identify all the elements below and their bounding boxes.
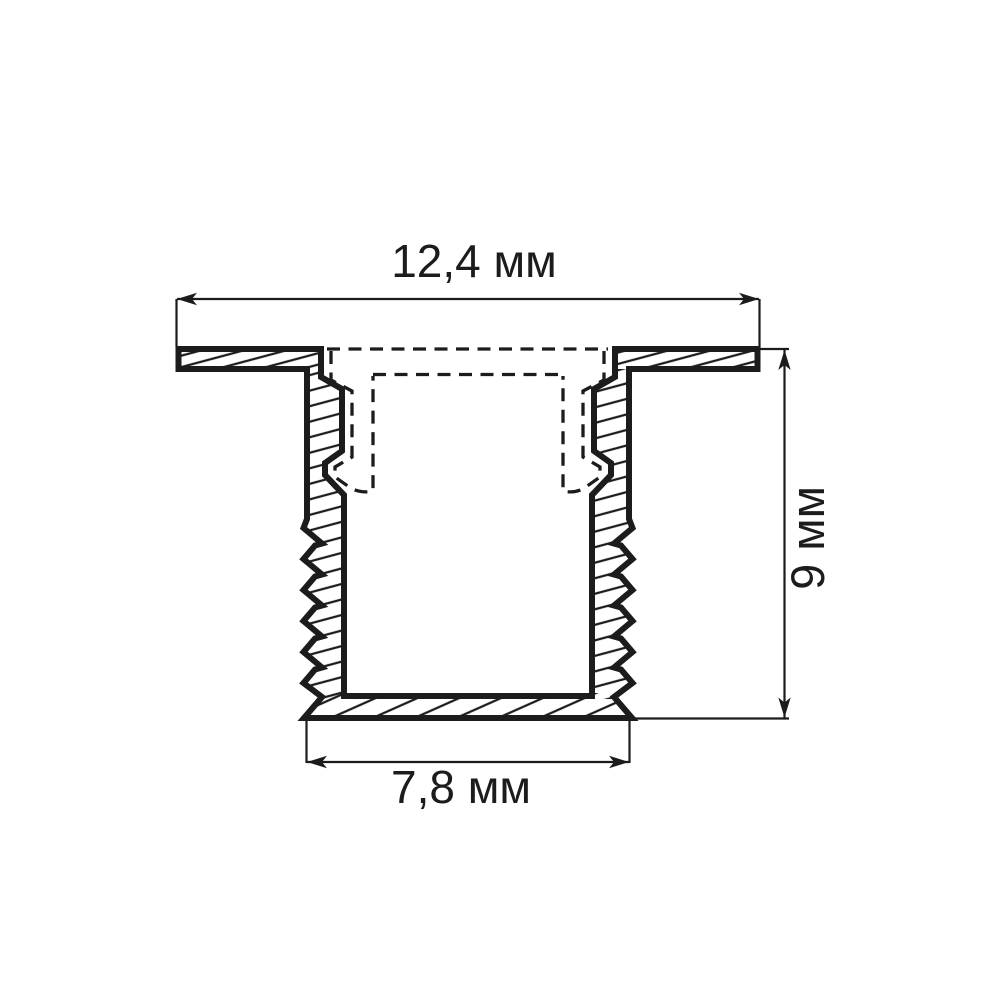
svg-text:12,4 мм: 12,4 мм	[391, 235, 557, 287]
svg-text:9 мм: 9 мм	[781, 486, 834, 590]
svg-text:7,8 мм: 7,8 мм	[391, 761, 531, 813]
